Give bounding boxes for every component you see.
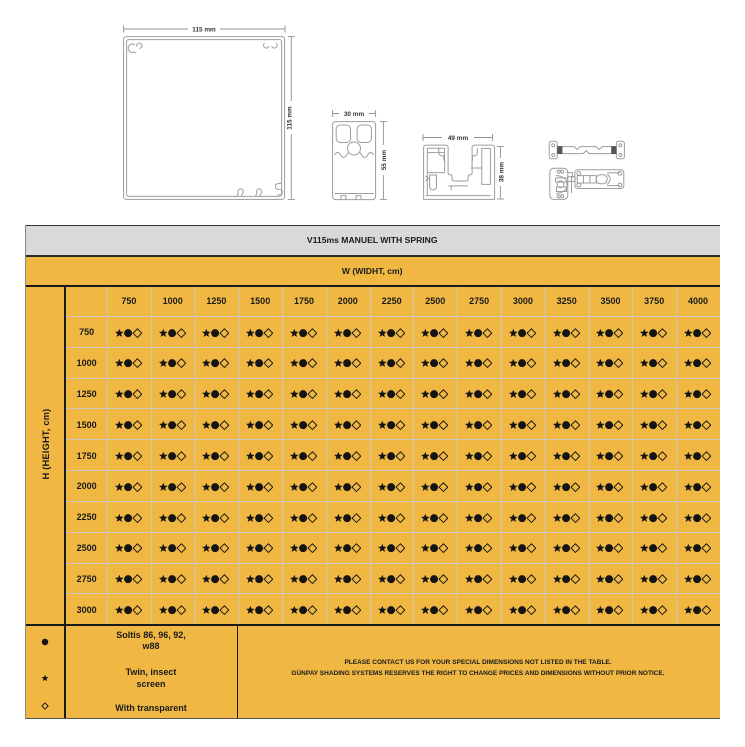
- svg-text:49 mm: 49 mm: [448, 135, 469, 142]
- svg-text:30 mm: 30 mm: [344, 111, 365, 118]
- svg-text:115 mm: 115 mm: [286, 106, 293, 130]
- svg-text:38 mm: 38 mm: [498, 162, 505, 183]
- svg-text:115 mm: 115 mm: [192, 27, 216, 34]
- svg-text:55 mm: 55 mm: [381, 150, 388, 171]
